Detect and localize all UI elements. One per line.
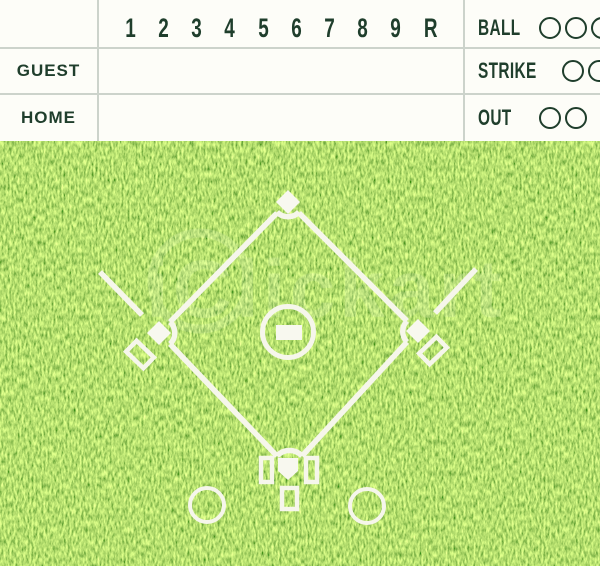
count-circle: [565, 107, 587, 129]
guest-label: GUEST: [17, 61, 81, 81]
count-circle: [539, 107, 561, 129]
ball-counter: BALL: [463, 0, 600, 47]
guest-row-header: GUEST: [0, 47, 97, 93]
ball-circles: [539, 17, 600, 39]
baseball-scoreboard-and-field: 1 2 3 4 5 6 7 8 9 R BALL GUEST STRIKE HO…: [0, 0, 600, 566]
inning-header: 5: [258, 13, 269, 44]
field-area: iClickart: [0, 141, 600, 566]
count-circle: [565, 17, 587, 39]
home-row-header: HOME: [0, 93, 97, 141]
home-label: HOME: [21, 108, 76, 128]
out-counter: OUT: [463, 93, 600, 141]
count-circle: [539, 17, 561, 39]
inning-header: 8: [357, 13, 368, 44]
count-circle: [591, 17, 600, 39]
inning-header: 1: [125, 13, 136, 44]
baseball-field: iClickart: [0, 141, 600, 566]
count-circle: [588, 60, 600, 82]
inning-header: 4: [225, 13, 236, 44]
inning-header: 9: [391, 13, 402, 44]
pitching-rubber: [276, 325, 302, 340]
guest-score-cells: [97, 47, 463, 93]
count-circle: [562, 60, 584, 82]
inning-header: 6: [291, 13, 302, 44]
out-label: OUT: [478, 105, 512, 131]
strike-counter: STRIKE: [463, 47, 600, 93]
inning-header: 2: [158, 13, 169, 44]
inning-header: 3: [192, 13, 203, 44]
inning-header-runs: R: [424, 13, 438, 44]
innings-header-row: 1 2 3 4 5 6 7 8 9 R: [97, 0, 463, 47]
scoreboard-corner-cell: [0, 0, 97, 47]
home-score-cells: [97, 93, 463, 141]
strike-circles: [562, 60, 600, 82]
ball-label: BALL: [478, 15, 520, 41]
out-circles: [539, 107, 587, 129]
watermark: iClickart: [146, 233, 506, 335]
scoreboard: 1 2 3 4 5 6 7 8 9 R BALL GUEST STRIKE HO…: [0, 0, 600, 141]
inning-header: 7: [324, 13, 335, 44]
strike-label: STRIKE: [478, 58, 537, 84]
